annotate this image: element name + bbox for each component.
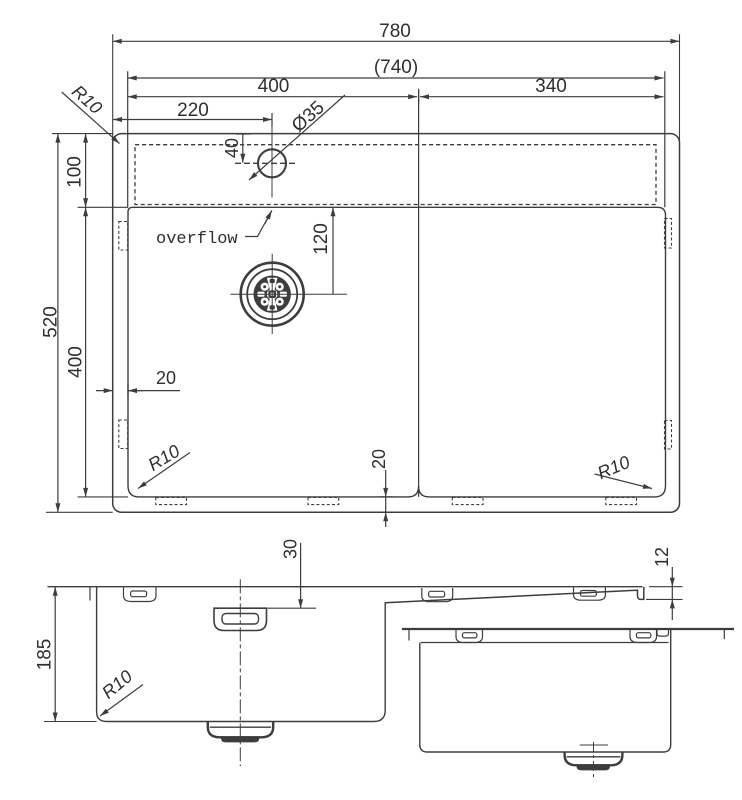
svg-text:40: 40 [222, 138, 242, 158]
svg-text:12: 12 [652, 547, 672, 567]
svg-text:185: 185 [35, 639, 56, 671]
svg-text:400: 400 [66, 346, 87, 378]
svg-text:400: 400 [258, 76, 290, 97]
svg-text:20: 20 [369, 449, 389, 469]
svg-text:100: 100 [65, 156, 86, 188]
svg-text:Ø35: Ø35 [288, 97, 329, 137]
svg-text:R10: R10 [68, 81, 106, 118]
svg-text:220: 220 [177, 100, 209, 121]
svg-text:(740): (740) [374, 57, 418, 78]
svg-text:20: 20 [156, 368, 176, 388]
svg-text:R10: R10 [145, 441, 184, 475]
svg-text:520: 520 [41, 306, 62, 338]
svg-text:120: 120 [311, 223, 332, 255]
svg-text:780: 780 [379, 21, 411, 42]
svg-text:30: 30 [281, 539, 301, 559]
svg-text:overflow: overflow [156, 230, 238, 249]
svg-text:340: 340 [535, 76, 567, 97]
svg-text:R10: R10 [98, 666, 136, 703]
